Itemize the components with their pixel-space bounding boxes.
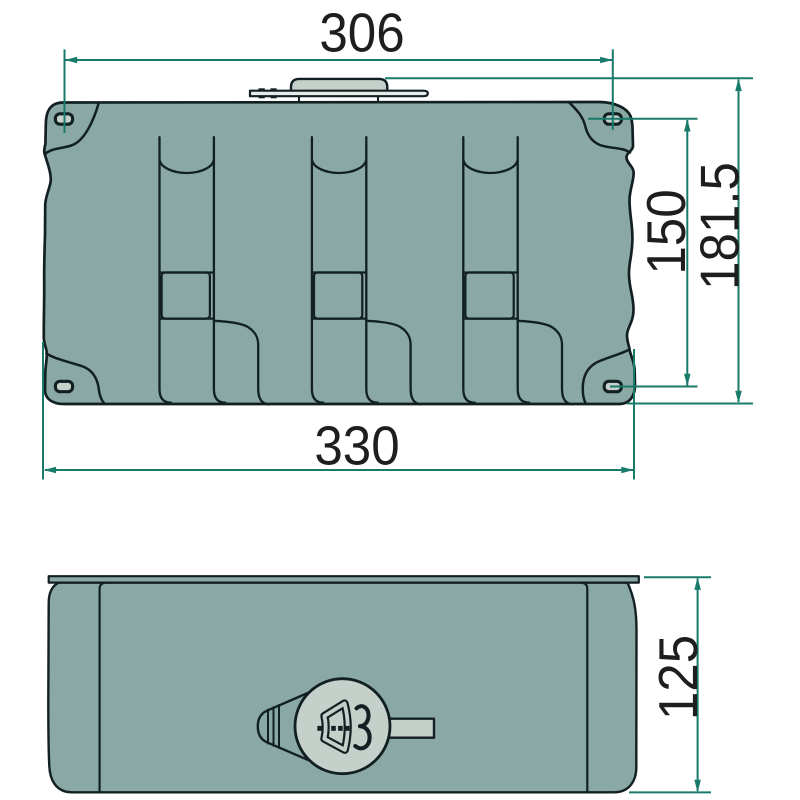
svg-text:125: 125 bbox=[648, 635, 709, 720]
svg-text:330: 330 bbox=[314, 416, 399, 477]
svg-text:150: 150 bbox=[636, 189, 697, 274]
svg-text:306: 306 bbox=[319, 3, 404, 64]
svg-text:181.5: 181.5 bbox=[690, 162, 751, 290]
